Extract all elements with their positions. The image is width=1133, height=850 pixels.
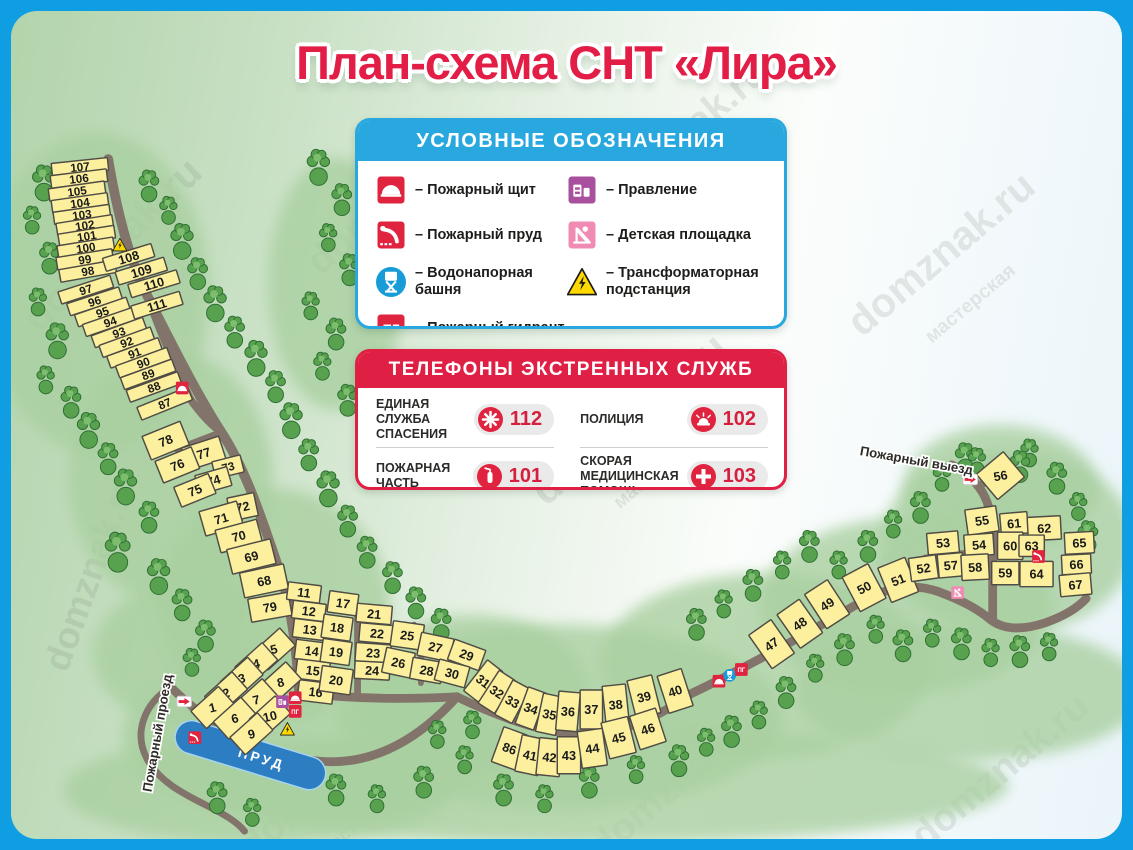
phone-number-pill: 103 xyxy=(687,461,768,491)
hydrant-icon: ПГ xyxy=(289,705,302,718)
plot-number: 13 xyxy=(302,622,318,638)
plot-number: 36 xyxy=(560,704,575,719)
plot-number: 52 xyxy=(916,561,932,577)
legend-item-label: – Трансформаторная подстанция xyxy=(606,265,774,298)
phone-number-pill: 112 xyxy=(474,404,554,435)
phones-box: ТЕЛЕФОНЫ ЭКСТРЕННЫХ СЛУЖБ ЕДИНАЯ СЛУЖБА … xyxy=(355,349,787,490)
phone-number-pill: 102 xyxy=(687,404,768,435)
phone-service-label: СКОРАЯ МЕДИЦИНСКАЯ ПОМОЩЬ xyxy=(580,454,678,491)
phone-number-pill: 101 xyxy=(473,461,554,491)
plot-number: 64 xyxy=(1029,568,1043,582)
plot-number: 58 xyxy=(968,560,983,575)
plot-number: 20 xyxy=(328,673,344,689)
legend-item-label: – Водонапорная башня xyxy=(415,265,567,298)
plot-number: 66 xyxy=(1069,557,1084,572)
plot: 58 xyxy=(961,554,990,581)
phone-service-label: ЕДИНАЯ СЛУЖБА СПАСЕНИЯ xyxy=(376,397,466,442)
plot: 19 xyxy=(320,638,352,665)
plot-number: 26 xyxy=(390,655,407,672)
plot-number: 18 xyxy=(329,620,345,636)
plot-number: 11 xyxy=(296,585,311,601)
legend-column: – Правление– Детская площадка– Трансформ… xyxy=(567,175,774,329)
tree xyxy=(406,587,426,619)
legend-item: – Пожарный пруд xyxy=(376,220,567,250)
plot-number: 55 xyxy=(974,513,990,529)
plot-number: 35 xyxy=(541,707,558,724)
plot-number: 57 xyxy=(943,558,958,573)
arrow-icon xyxy=(177,696,192,707)
plot: 54 xyxy=(964,533,995,556)
board-icon xyxy=(276,695,289,708)
plot: 21 xyxy=(356,603,393,624)
svg-text:ПГ: ПГ xyxy=(383,322,400,329)
legend-box: УСЛОВНЫЕ ОБОЗНАЧЕНИЯ – Пожарный щит– Пож… xyxy=(355,118,787,329)
plot: 64 xyxy=(1020,561,1053,586)
plot-number: 38 xyxy=(608,697,623,712)
playground-icon xyxy=(567,220,597,250)
plot-number: 41 xyxy=(522,747,539,764)
plot: 43 xyxy=(557,737,580,774)
fire-pond-icon xyxy=(1032,550,1045,563)
board-icon xyxy=(567,175,597,205)
poster: domznak.ruмастерскаяdomznak.rudomznak.ru… xyxy=(0,0,1133,850)
water-tower-icon xyxy=(723,669,736,682)
plot: 17 xyxy=(327,591,359,616)
transformer-icon xyxy=(567,267,597,297)
plot-number: 42 xyxy=(542,750,557,765)
plot-number: 22 xyxy=(369,626,384,641)
plot: 20 xyxy=(319,666,353,695)
phone-item: СКОРАЯ МЕДИЦИНСКАЯ ПОМОЩЬ103 xyxy=(580,448,768,490)
plot: 55 xyxy=(965,506,999,535)
plot-number: 56 xyxy=(992,468,1008,484)
phone-number: 103 xyxy=(723,465,756,488)
plot-number: 12 xyxy=(301,604,317,620)
phones-title: ТЕЛЕФОНЫ ЭКСТРЕННЫХ СЛУЖБ xyxy=(358,352,784,388)
hydrant-icon: ПГ xyxy=(735,663,748,676)
tree xyxy=(225,316,245,348)
tree xyxy=(245,340,267,376)
sos-star-icon xyxy=(478,407,503,432)
svg-text:ПГ: ПГ xyxy=(737,668,745,674)
plot: 18 xyxy=(321,614,353,641)
plot: 36 xyxy=(556,691,581,732)
phone-item: ЕДИНАЯ СЛУЖБА СПАСЕНИЯ112 xyxy=(376,392,554,448)
plot-number: 59 xyxy=(998,567,1012,581)
legend-item: – Правление xyxy=(567,175,774,205)
plot-number: 68 xyxy=(256,573,273,590)
fire-pond-icon xyxy=(189,731,202,744)
plot-number: 60 xyxy=(1003,539,1017,553)
plot: 52 xyxy=(908,555,938,582)
legend-item: – Пожарный щит xyxy=(376,175,567,205)
extinguisher-icon xyxy=(477,464,502,489)
legend-item-label: – Правление xyxy=(606,182,697,199)
hydrant-icon: ПГ xyxy=(376,313,406,329)
fire-shield-icon xyxy=(176,382,189,395)
plot-number: 79 xyxy=(262,600,278,616)
playground-icon xyxy=(951,586,964,599)
plot-number: 25 xyxy=(399,628,415,644)
legend-title: УСЛОВНЫЕ ОБОЗНАЧЕНИЯ xyxy=(358,121,784,161)
plot: 65 xyxy=(1064,531,1094,554)
phone-number: 102 xyxy=(723,408,756,431)
plot-number: 43 xyxy=(562,749,576,763)
phone-service-label: ПОЛИЦИЯ xyxy=(580,412,643,427)
plot: 37 xyxy=(580,690,602,729)
phone-item: ПОЛИЦИЯ102 xyxy=(580,392,768,448)
plot: 67 xyxy=(1059,573,1092,597)
plot-number: 67 xyxy=(1068,578,1083,593)
plot: 66 xyxy=(1061,554,1091,575)
plot-number: 62 xyxy=(1037,521,1052,536)
poster-title: План-схема СНТ «Лира» xyxy=(11,35,1122,90)
poster-background: domznak.ruмастерскаяdomznak.rudomznak.ru… xyxy=(11,11,1122,839)
fire-shield-icon xyxy=(376,175,406,205)
plot: 53 xyxy=(927,531,960,555)
plot: 22 xyxy=(359,623,396,644)
legend-item-label: – Пожарный пруд xyxy=(415,227,542,244)
plot-number: 23 xyxy=(366,646,381,661)
tree xyxy=(317,471,339,507)
plot-number: 21 xyxy=(366,607,381,622)
legend-item-label: – Пожарный гидрант xyxy=(415,320,565,329)
plot-number: 19 xyxy=(328,645,344,661)
plot-number: 44 xyxy=(584,741,600,757)
plot-number: 53 xyxy=(935,536,950,551)
phone-number: 101 xyxy=(509,465,542,488)
plot-number: 17 xyxy=(335,596,351,612)
tree xyxy=(299,439,319,471)
plot-number: 28 xyxy=(418,663,434,679)
legend-item: – Водонапорная башня xyxy=(376,265,567,298)
legend-item: ПГ– Пожарный гидрант xyxy=(376,313,567,329)
plot-number: 15 xyxy=(305,663,321,679)
legend-item: – Детская площадка xyxy=(567,220,774,250)
tree xyxy=(280,403,302,439)
svg-text:ПГ: ПГ xyxy=(291,710,299,716)
legend-item-label: – Детская площадка xyxy=(606,227,751,244)
plot-number: 37 xyxy=(584,703,598,717)
legend-item-label: – Пожарный щит xyxy=(415,182,536,199)
medical-cross-icon xyxy=(691,464,716,489)
plot: 11 xyxy=(286,582,321,603)
phone-item: ПОЖАРНАЯ ЧАСТЬ101 xyxy=(376,448,554,490)
legend-items: – Пожарный щит– Пожарный пруд– Водонапор… xyxy=(358,161,784,329)
legend-item: – Трансформаторная подстанция xyxy=(567,265,774,298)
plot-number: 24 xyxy=(365,664,380,679)
phone-service-label: ПОЖАРНАЯ ЧАСТЬ xyxy=(376,461,465,490)
plot: 44 xyxy=(577,728,607,768)
plot: 59 xyxy=(992,561,1019,584)
legend-column: – Пожарный щит– Пожарный пруд– Водонапор… xyxy=(376,175,567,329)
plot-number: 14 xyxy=(304,644,320,660)
fire-shield-icon xyxy=(713,675,726,688)
tree xyxy=(266,371,286,403)
plot-number: 27 xyxy=(427,639,444,656)
plot-number: 65 xyxy=(1072,536,1087,551)
water-tower-icon xyxy=(376,267,406,297)
fire-pond-icon xyxy=(376,220,406,250)
plot-number: 54 xyxy=(972,538,987,553)
siren-icon xyxy=(691,407,716,432)
plot-number: 61 xyxy=(1007,516,1022,531)
phone-number: 112 xyxy=(510,408,542,431)
fire-shield-icon xyxy=(289,691,302,704)
phone-items: ЕДИНАЯ СЛУЖБА СПАСЕНИЯ112ПОЖАРНАЯ ЧАСТЬ1… xyxy=(358,388,784,490)
